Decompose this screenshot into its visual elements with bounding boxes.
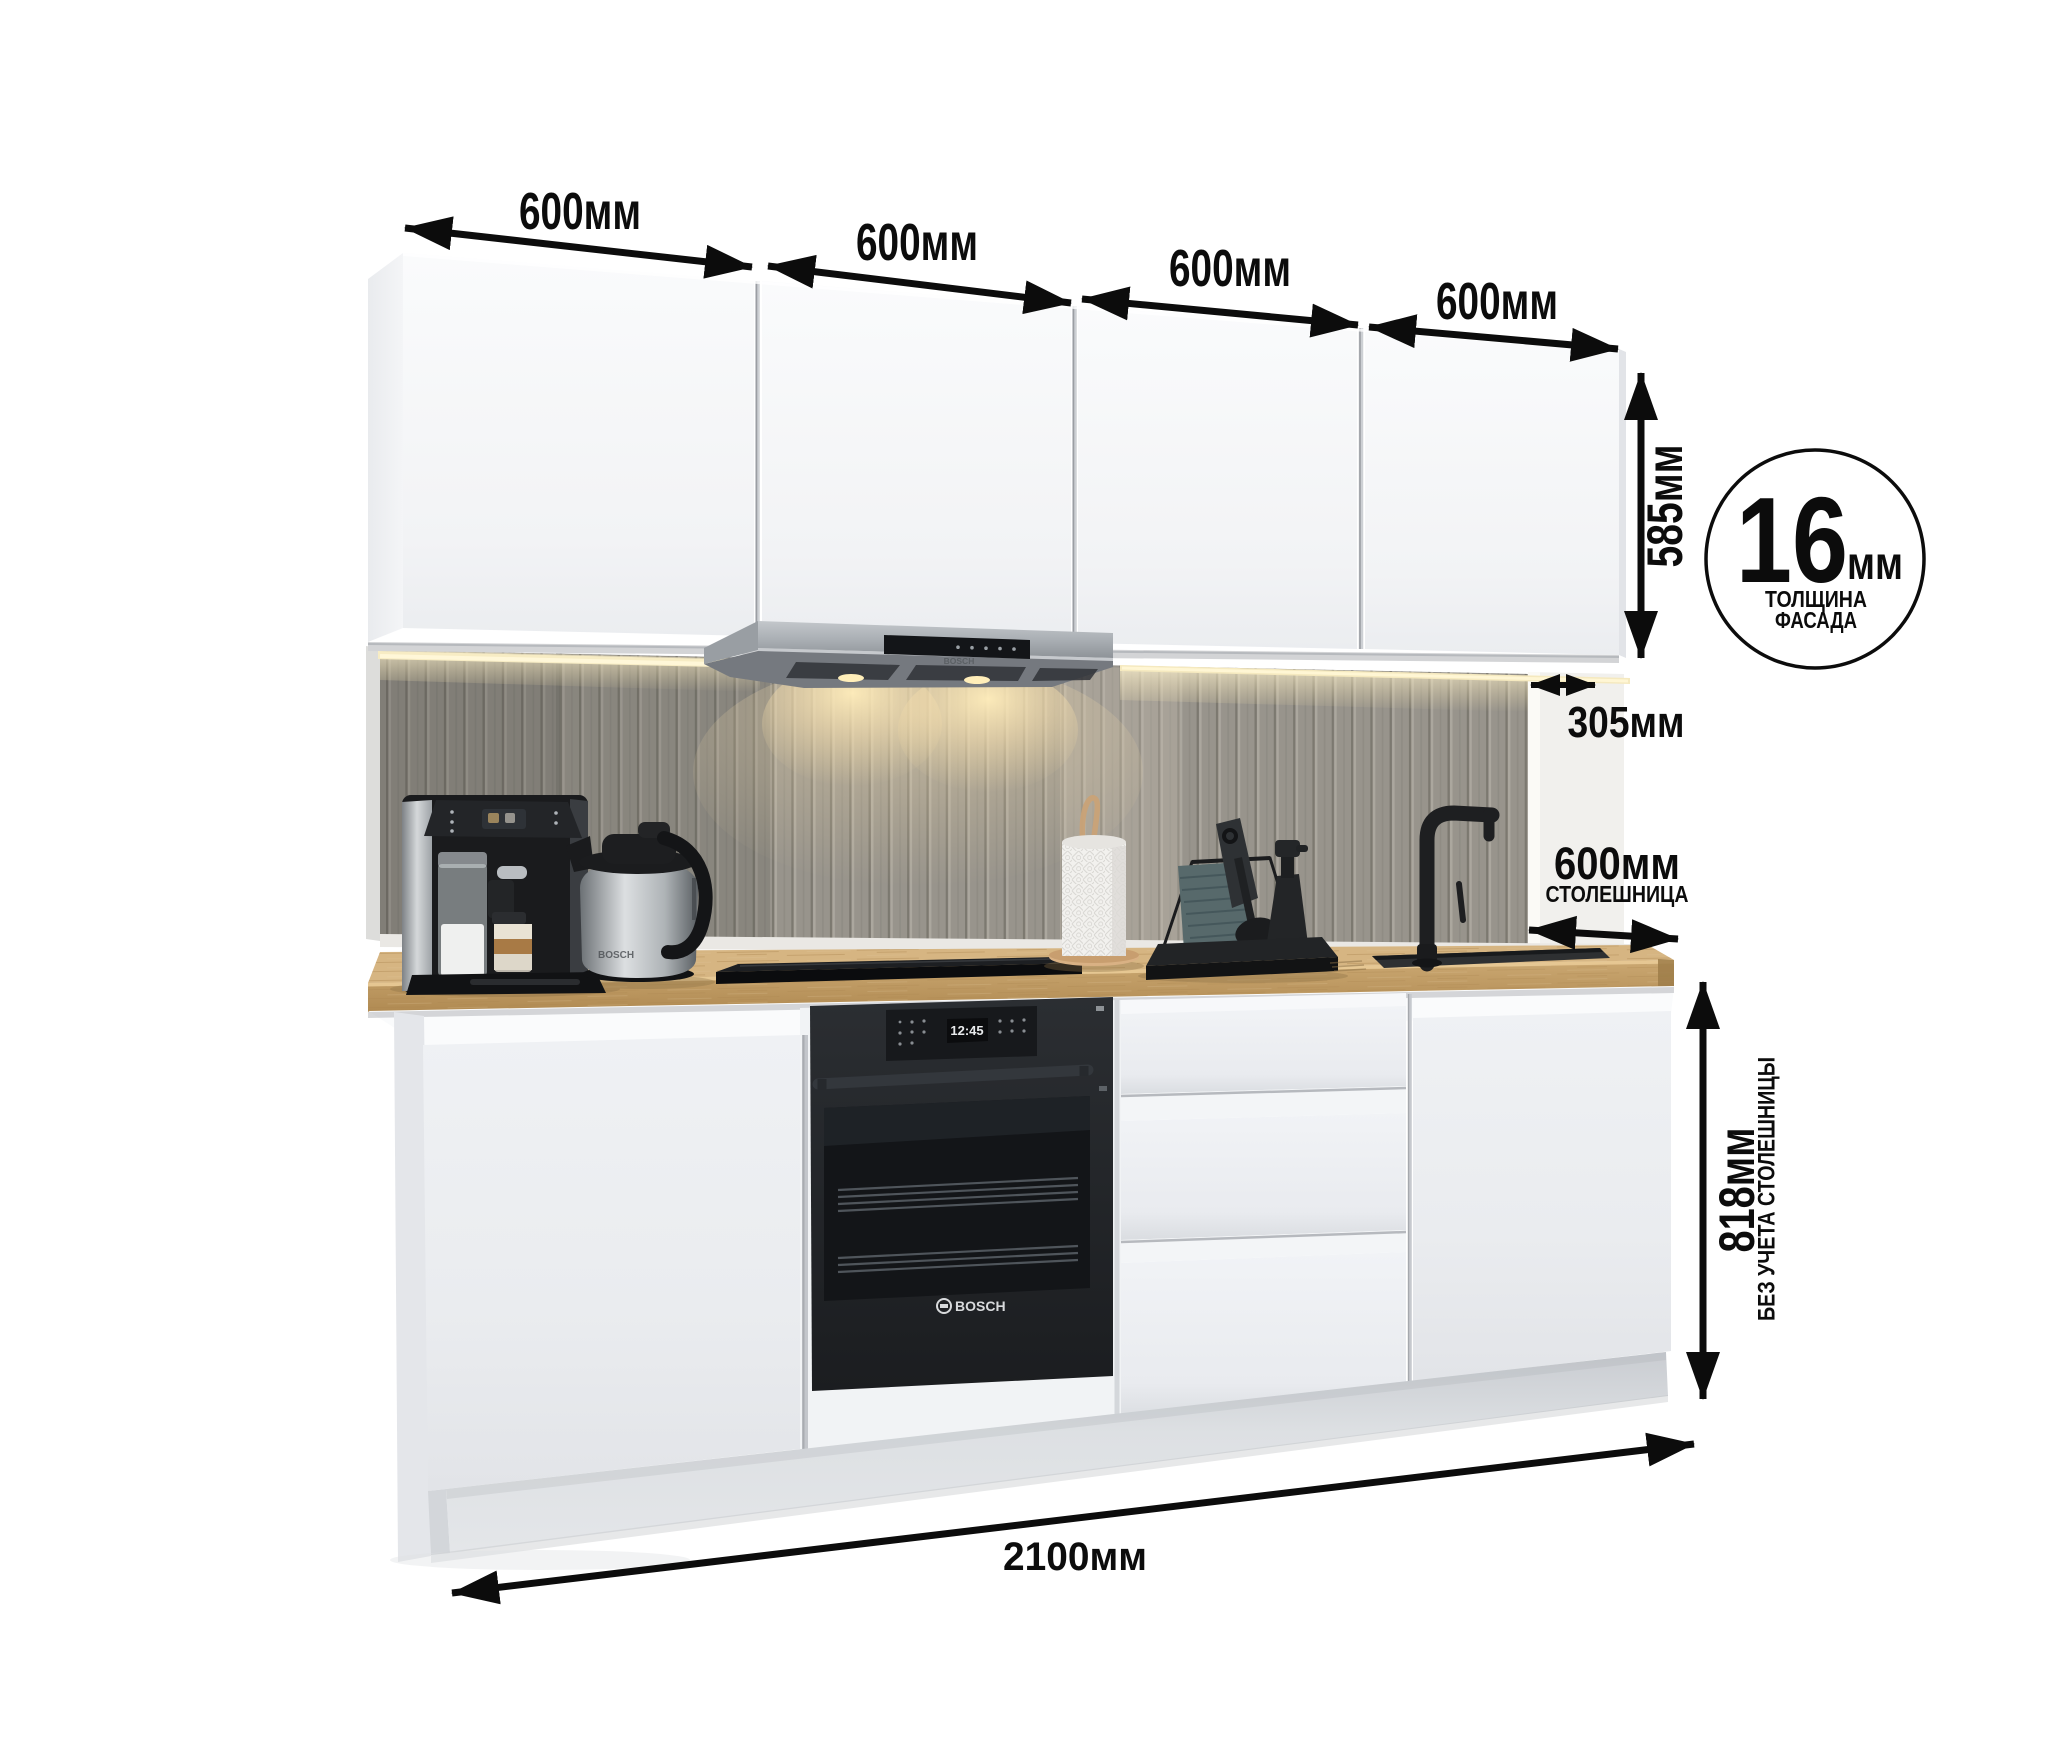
svg-text:ФАСАДА: ФАСАДА — [1775, 607, 1857, 633]
svg-text:585мм: 585мм — [1637, 445, 1693, 568]
svg-text:СТОЛЕШНИЦА: СТОЛЕШНИЦА — [1546, 881, 1689, 907]
svg-text:600мм: 600мм — [519, 183, 641, 241]
svg-text:600мм: 600мм — [856, 214, 978, 272]
svg-text:12:45: 12:45 — [950, 1023, 983, 1038]
svg-text:BOSCH: BOSCH — [598, 950, 634, 961]
svg-text:BOSCH: BOSCH — [955, 1298, 1006, 1314]
svg-text:305мм: 305мм — [1568, 698, 1685, 747]
svg-text:600мм: 600мм — [1169, 240, 1291, 298]
svg-text:BOSCH: BOSCH — [944, 656, 975, 666]
svg-text:мм: мм — [1847, 537, 1903, 589]
svg-text:2100мм: 2100мм — [1003, 1535, 1147, 1579]
svg-text:БЕЗ УЧЕТА СТОЛЕШНИЦЫ: БЕЗ УЧЕТА СТОЛЕШНИЦЫ — [1754, 1057, 1781, 1321]
svg-text:600мм: 600мм — [1436, 273, 1558, 331]
